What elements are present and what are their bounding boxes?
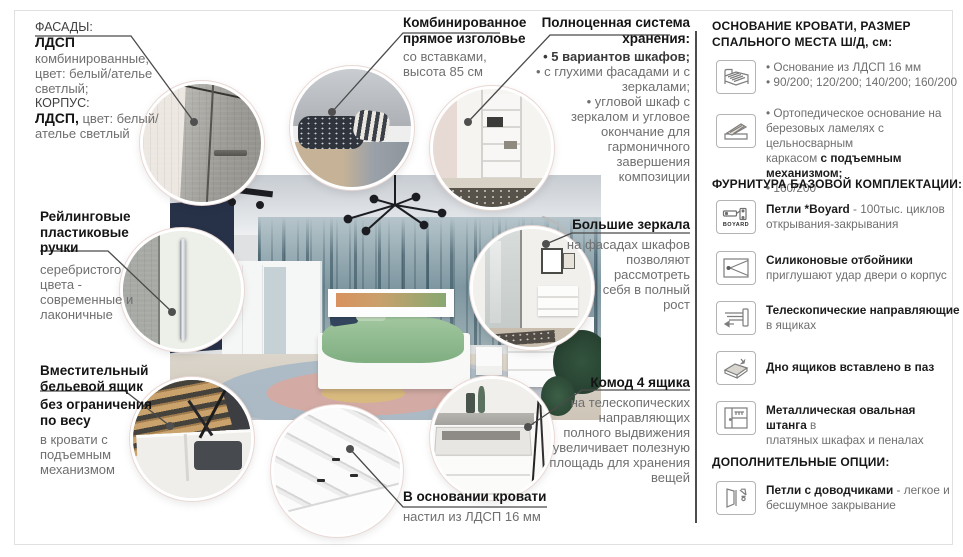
handles-line: цвета - [40,277,180,292]
mirrors-title: Большие зеркала [560,217,690,233]
drawer-box-line: в кровати с [40,432,185,447]
handles-title: Рейлинговые [40,209,180,225]
drawer-box-title: Вместительный [40,363,185,379]
facades-line: ЛДСП, цвет: белый/ [35,111,175,126]
callout-commode: Комод 4 ящика на телескопических направл… [545,375,690,485]
korpus-label: КОРПУС: [35,96,175,111]
lift-bed-icon [716,114,756,148]
panel-header-base: ОСНОВАНИЕ КРОВАТИ, РАЗМЕР СПАЛЬНОГО МЕСТ… [712,18,911,50]
commode-title: Комод 4 ящика [545,375,690,391]
panel-hw-rails: Телескопические направляющие в ящиках [766,303,960,333]
panel-hw-hinges: Петли *Boyard - 100тыс. циклов открывани… [766,202,945,232]
drawer-bottom-icon [716,351,756,385]
infographic-page: ФАСАДЫ: ЛДСП комбинированные, цвет: белы… [0,0,963,557]
mirrors-line: рост [560,297,690,312]
storage-bullet: гармоничного [525,139,690,154]
bed-base-line: настил из ЛДСП 16 мм [403,509,573,524]
facades-label: ФАСАДЫ: [35,20,175,35]
panel-base-item-1: • Основание из ЛДСП 16 мм • 90/200; 120/… [766,60,957,90]
mirrors-line: рассмотреть [560,267,690,282]
mirrors-line: себя в полный [560,282,690,297]
telescopic-rails-icon [716,301,756,335]
facades-line: ателье светлый [35,126,175,141]
storage-bullet: зеркалом и угловое [525,109,690,124]
silicone-bumper-icon [716,251,756,285]
oval-rod-icon [716,401,756,435]
bed-base-title: В основании кровати [403,489,573,505]
commode-line: вещей [545,470,690,485]
boyard-label: BOYARD [723,222,749,228]
commode-line: на телескопических [545,395,690,410]
drawer-box-line: подъемным [40,447,185,462]
panel-hw-rod: Металлическая овальная штанга в платяных… [766,403,956,448]
callout-photo-commode-drawer [430,376,554,500]
callout-storage-system: Полноценная система хранения: • 5 вариан… [525,15,690,184]
callout-handles: Рейлинговые пластиковые ручки серебристо… [40,209,180,322]
storage-bullet: окончание для [525,124,690,139]
panel-header-options: ДОПОЛНИТЕЛЬНЫЕ ОПЦИИ: [712,454,890,470]
storage-bullet: • 5 вариантов шкафов; [525,49,690,64]
handles-line: серебристого [40,262,180,277]
callout-bed-base: В основании кровати настил из ЛДСП 16 мм [403,489,573,524]
panel-header-hardware: ФУРНИТУРА БАЗОВОЙ КОМПЛЕКТАЦИИ: [712,176,962,192]
commode-line: направляющих [545,410,690,425]
panel-option-soft-close: Петли с доводчиками - легкое и бесшумное… [766,483,950,513]
handles-title: пластиковые [40,225,180,241]
drawer-box-title: бельевой ящик [40,379,185,395]
storage-bullet: завершения [525,154,690,169]
drawer-box-title: по весу [40,413,185,429]
storage-title: хранения: [525,31,690,47]
storage-bullet: композиции [525,169,690,184]
callout-photo-bed-base-slats [271,405,403,537]
callout-mirrors: Большие зеркала на фасадах шкафов позвол… [560,217,690,312]
handles-title: ручки [40,240,180,256]
commode-line: полного выдвижения [545,425,690,440]
mirrors-line: на фасадах шкафов [560,237,690,252]
facades-line: комбинированные, [35,51,175,66]
drawer-box-line: механизмом [40,462,185,477]
commode-line: увеличивает полезную [545,440,690,455]
panel-hw-drawer-bottom: Дно ящиков вставлено в паз [766,360,934,375]
panel-divider-line [695,31,697,523]
facades-line: светлый; [35,81,175,96]
facades-title: ЛДСП [35,35,175,51]
handles-line: лаконичные [40,307,180,322]
mirrors-line: позволяют [560,252,690,267]
commode-line: площадь для хранения [545,455,690,470]
soft-close-hinge-icon [716,481,756,515]
handles-line: современные и [40,292,180,307]
facades-line: цвет: белый/ателье [35,66,175,81]
bed-icon [716,60,756,94]
callout-drawer-box: Вместительный бельевой ящик без ограниче… [40,363,185,477]
storage-bullet: • с глухими фасадами и с [525,64,690,79]
drawer-box-title: без ограничения [40,397,185,413]
panel-hw-bumpers: Силиконовые отбойники приглушают удар дв… [766,253,947,283]
storage-bullet: • угловой шкаф с [525,94,690,109]
callout-photo-headboard [290,66,414,190]
storage-bullet: зеркалами; [525,79,690,94]
hinge-boyard-icon: BOYARD [716,200,756,234]
callout-facades: ФАСАДЫ: ЛДСП комбинированные, цвет: белы… [35,20,175,141]
storage-title: Полноценная система [525,15,690,31]
